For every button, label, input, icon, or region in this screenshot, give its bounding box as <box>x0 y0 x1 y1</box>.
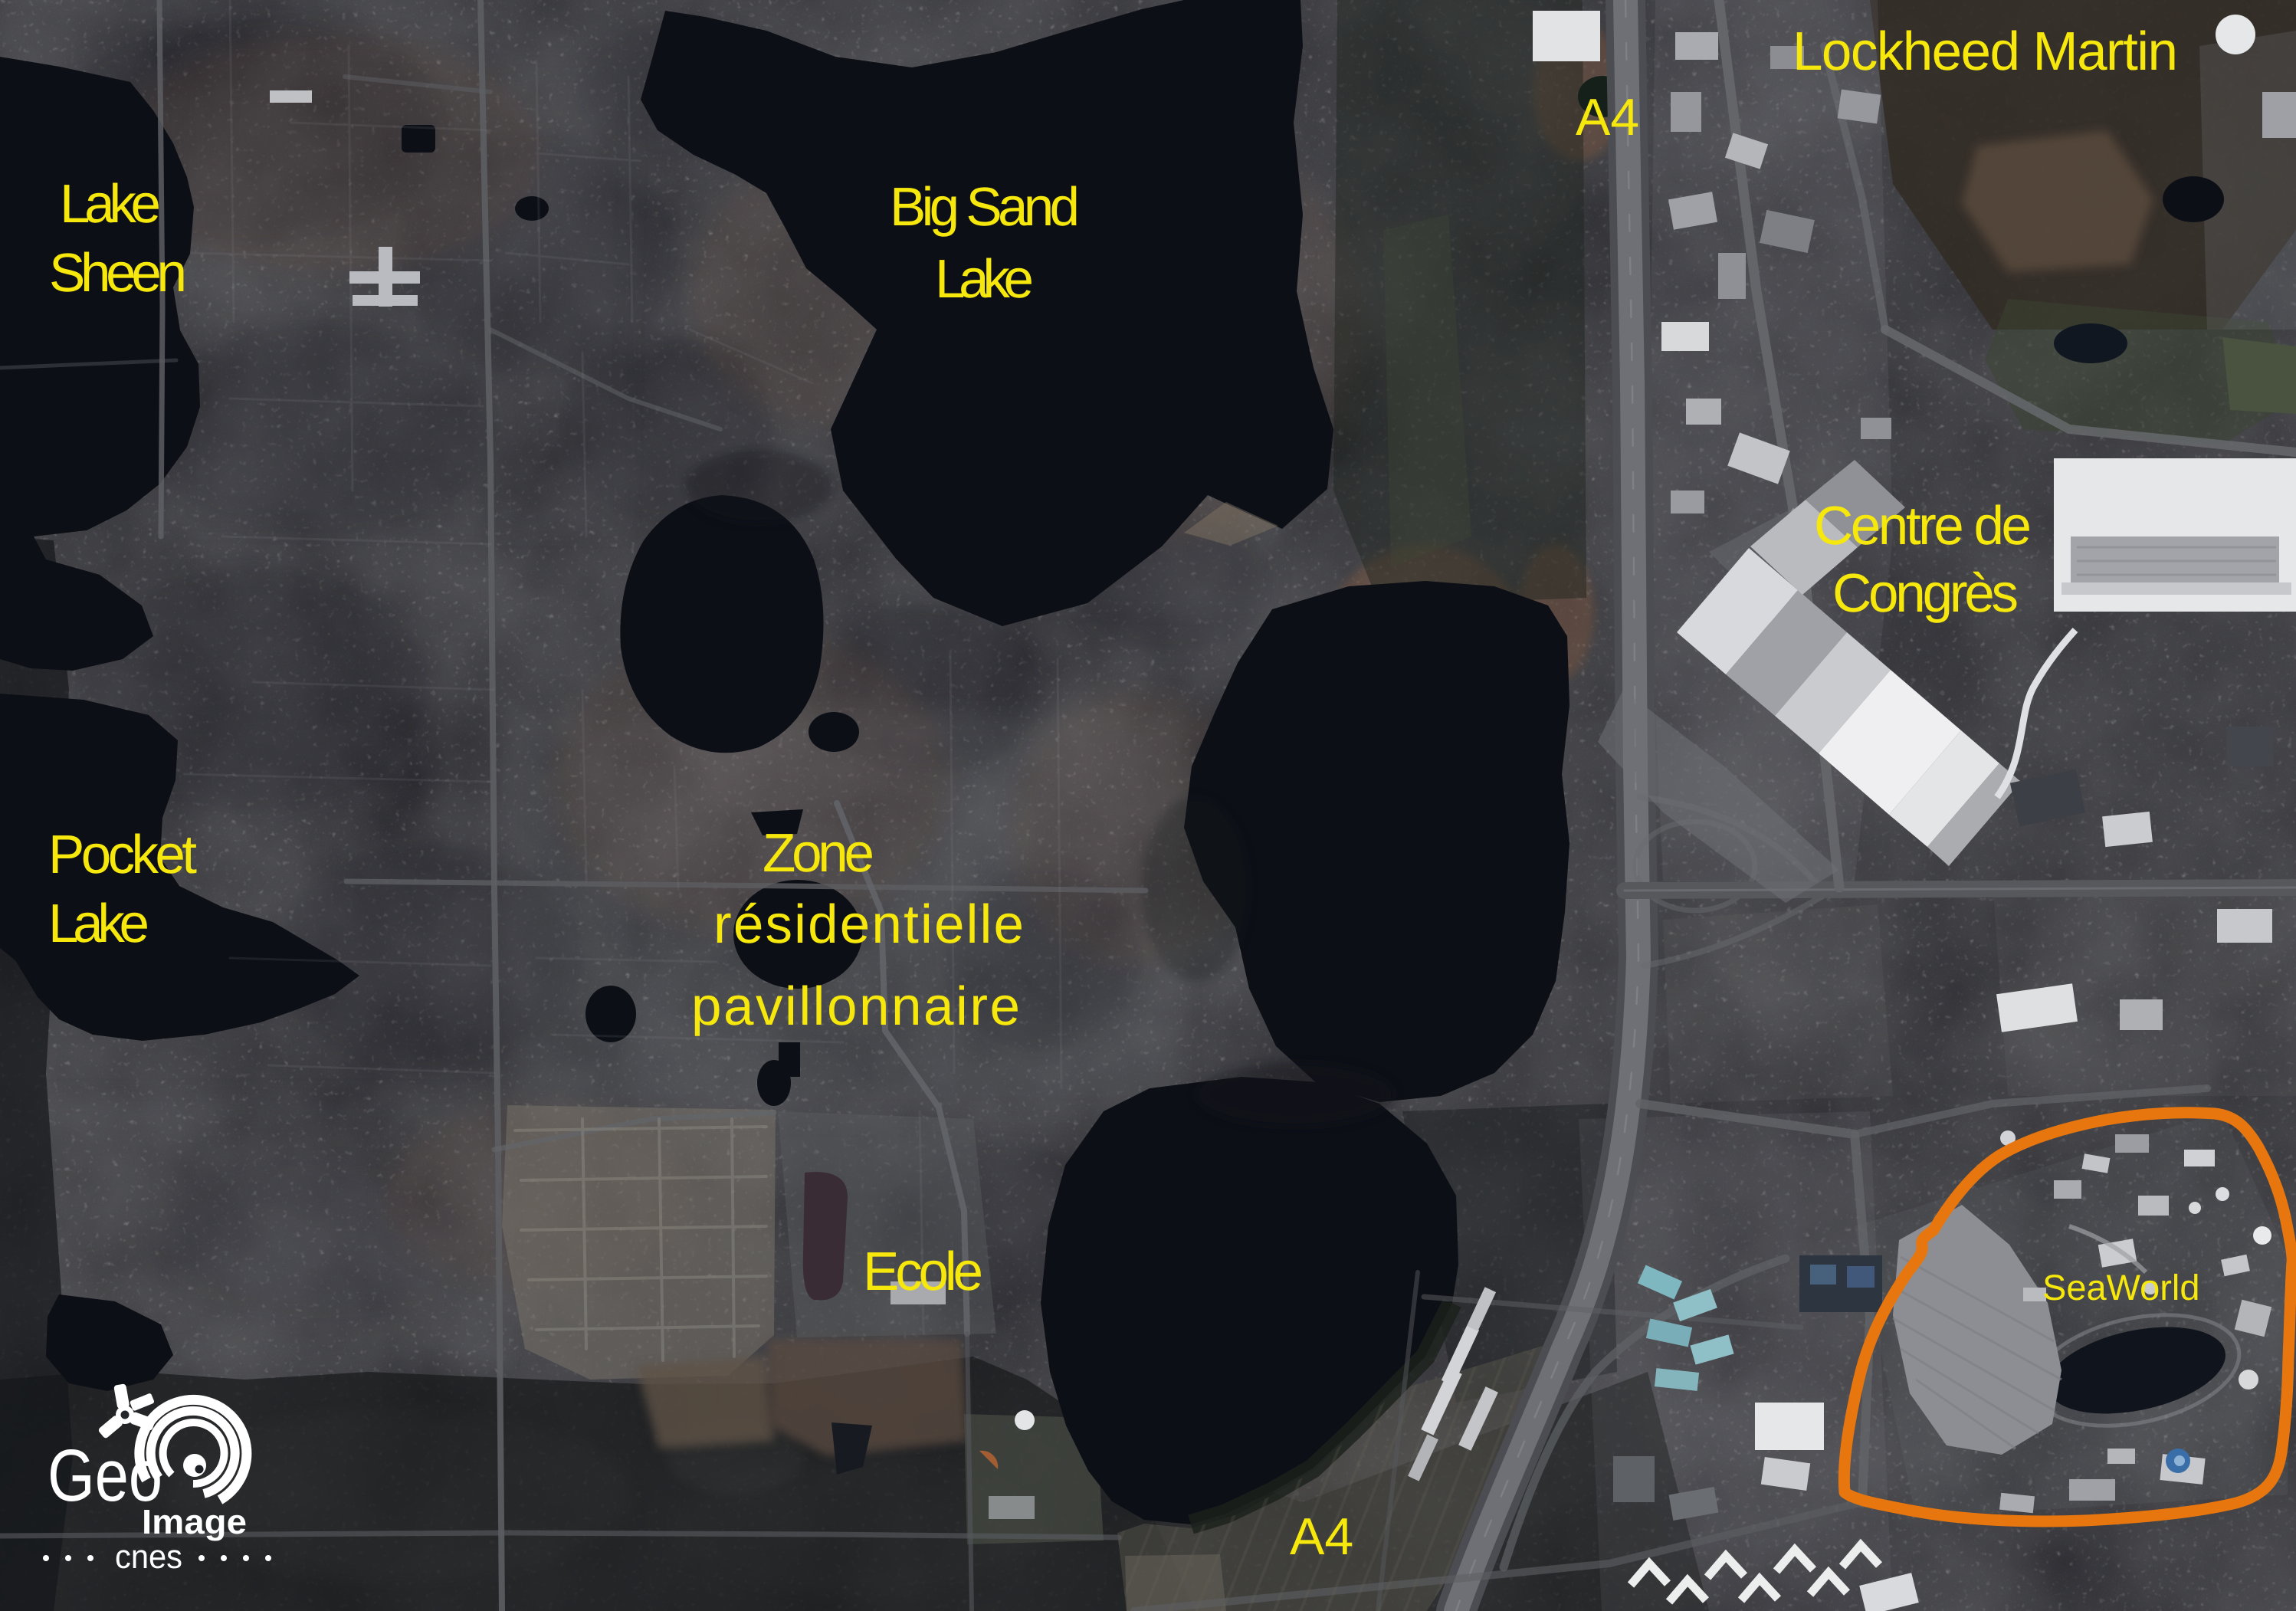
svg-text:SeaWorld: SeaWorld <box>2042 1267 2200 1308</box>
svg-text:Ecole: Ecole <box>863 1242 983 1302</box>
svg-text:Image: Image <box>142 1502 247 1541</box>
svg-text:A4: A4 <box>1290 1508 1353 1566</box>
svg-text:Zone: Zone <box>763 823 874 884</box>
svg-text:résidentielle: résidentielle <box>713 894 1024 955</box>
svg-text:Sheen: Sheen <box>49 243 187 303</box>
svg-text:Big Sand: Big Sand <box>890 177 1080 238</box>
svg-text:Centre de: Centre de <box>1814 496 2032 556</box>
svg-text:Pocket: Pocket <box>48 825 197 885</box>
svg-text:Congrès: Congrès <box>1832 563 2019 624</box>
svg-text:Lake: Lake <box>48 894 149 954</box>
svg-text:Lake: Lake <box>935 249 1034 310</box>
svg-text:pavillonnaire: pavillonnaire <box>691 976 1020 1037</box>
svg-text:A4: A4 <box>1576 88 1639 146</box>
svg-text:Lockheed Martin: Lockheed Martin <box>1793 21 2178 82</box>
svg-text:Lake: Lake <box>60 174 161 235</box>
svg-text:cnes: cnes <box>115 1538 182 1576</box>
